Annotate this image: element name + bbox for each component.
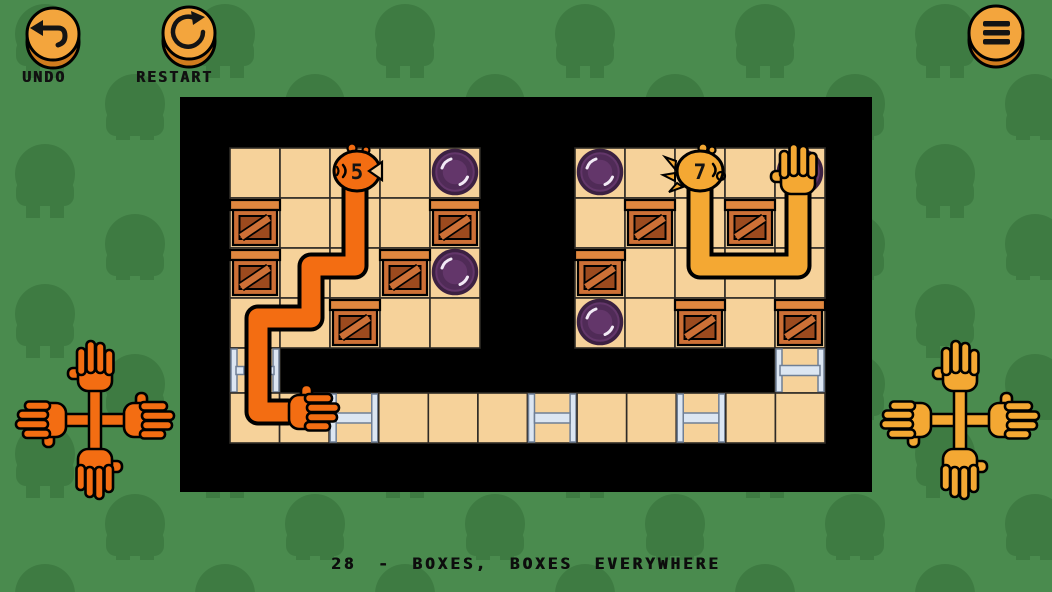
pressure-button xyxy=(434,251,477,294)
floor-cell xyxy=(625,298,675,348)
floor-cell xyxy=(380,198,430,248)
yellow-arm-number: 7 xyxy=(694,160,707,184)
wooden-crate xyxy=(675,300,725,345)
undo-button[interactable] xyxy=(23,5,83,73)
floor-cell xyxy=(430,298,480,348)
grabber-hand xyxy=(124,393,174,439)
floor-cell xyxy=(577,393,627,443)
menu-button[interactable] xyxy=(965,4,1027,70)
floor-cell xyxy=(775,393,825,443)
grabber-hand xyxy=(68,341,114,391)
floor-cell xyxy=(380,298,430,348)
pressure-button xyxy=(434,151,477,194)
floor-cell xyxy=(380,148,430,198)
grabber-hand xyxy=(16,402,66,448)
puzzle-board[interactable]: 57 xyxy=(180,97,872,492)
wooden-crate xyxy=(230,250,280,295)
grabber-hand xyxy=(942,449,988,499)
floor-cell xyxy=(280,198,330,248)
right-hand-cross xyxy=(881,341,1039,499)
left-hand-cross xyxy=(16,341,174,499)
wooden-crate xyxy=(775,300,825,345)
floor-cell xyxy=(725,298,775,348)
floor-cell xyxy=(428,393,478,443)
right-hand-cross-decoration xyxy=(865,325,1052,515)
grabber-hand xyxy=(881,402,931,448)
grabber-hand xyxy=(77,449,123,499)
game-screen: UNDO RESTART 57 28 - BOXES, BOXES EVERYW… xyxy=(0,0,1052,592)
floor-cell xyxy=(575,198,625,248)
ladder-shaft xyxy=(775,348,825,393)
floor-cell xyxy=(230,148,280,198)
restart-label: RESTART xyxy=(136,68,213,86)
pressure-button xyxy=(579,301,622,344)
wooden-crate xyxy=(575,250,625,295)
level-caption: 28 - BOXES, BOXES EVERYWHERE xyxy=(0,554,1052,573)
grabber-hand xyxy=(933,341,979,391)
floor-cell xyxy=(379,393,429,443)
grabber-hand xyxy=(989,393,1039,439)
wooden-crate xyxy=(330,300,380,345)
wooden-crate xyxy=(230,200,280,245)
wooden-crate xyxy=(725,200,775,245)
restart-button[interactable] xyxy=(159,4,219,72)
wooden-crate xyxy=(380,250,430,295)
floor-cell xyxy=(725,148,775,198)
floor-cell xyxy=(478,393,528,443)
wooden-crate xyxy=(430,200,480,245)
floor-cell xyxy=(280,148,330,198)
floor-cell xyxy=(627,393,677,443)
floor-cell xyxy=(625,248,675,298)
undo-label: UNDO xyxy=(22,68,66,86)
hamburger-menu-icon xyxy=(983,21,1010,45)
pressure-button xyxy=(579,151,622,194)
floor-cell xyxy=(625,148,675,198)
orange-arm-number: 5 xyxy=(351,160,364,184)
floor-cell xyxy=(726,393,776,443)
wooden-crate xyxy=(625,200,675,245)
left-hand-cross-decoration xyxy=(0,325,190,515)
